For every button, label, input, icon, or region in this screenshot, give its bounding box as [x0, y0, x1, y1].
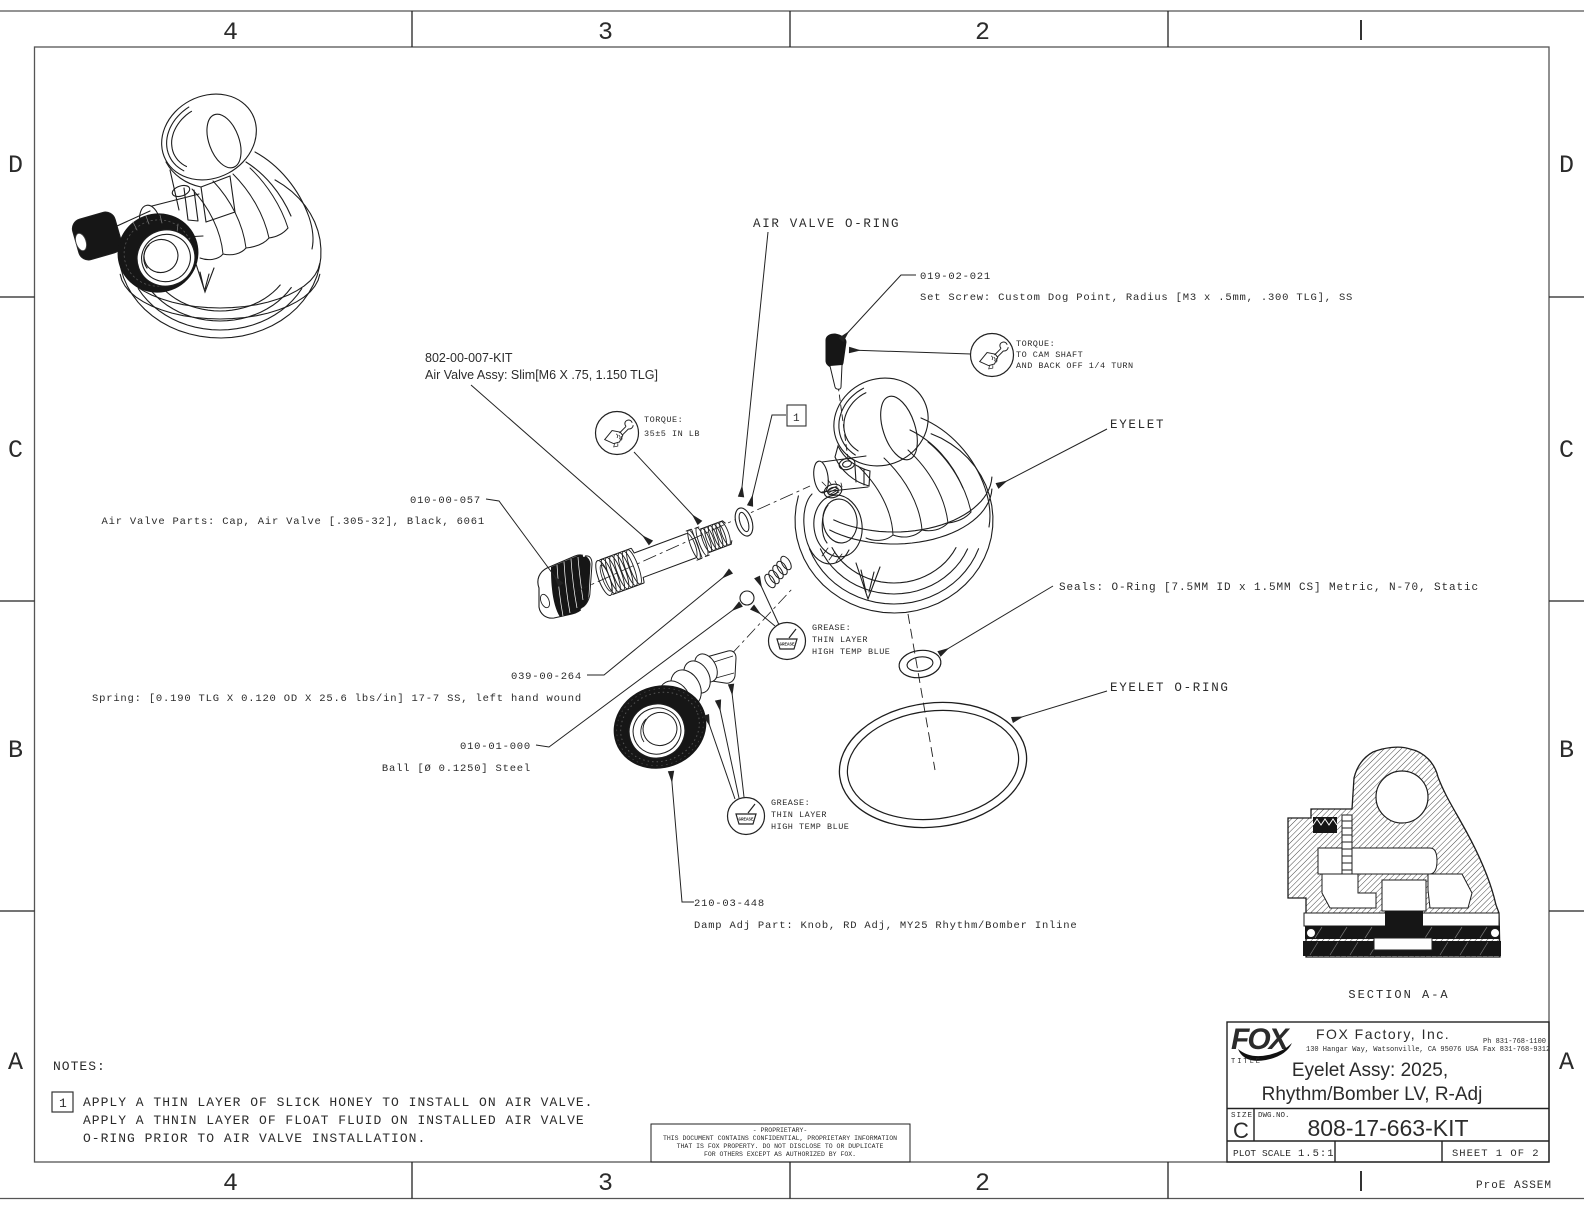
svg-text:1.5:1: 1.5:1: [1298, 1148, 1335, 1160]
svg-text:D: D: [1559, 151, 1574, 180]
svg-text:AND BACK OFF 1/4 TURN: AND BACK OFF 1/4 TURN: [1016, 361, 1134, 371]
svg-text:EYELET O-RING: EYELET O-RING: [1110, 681, 1230, 695]
svg-text:HIGH TEMP BLUE: HIGH TEMP BLUE: [812, 647, 890, 657]
svg-text:GREASE: GREASE: [779, 644, 795, 648]
svg-text:ProE ASSEM: ProE ASSEM: [1476, 1180, 1552, 1192]
svg-text:FOR OTHERS EXCEPT AS AUTHORIZE: FOR OTHERS EXCEPT AS AUTHORIZED BY FOX.: [704, 1151, 856, 1158]
svg-text:4: 4: [223, 18, 238, 47]
svg-text:Damp Adj Part: Knob, RD Adj, M: Damp Adj Part: Knob, RD Adj, MY25 Rhythm…: [694, 920, 1077, 932]
svg-text:GREASE:: GREASE:: [771, 798, 810, 808]
svg-text:Air Valve Parts: Cap, Air Valv: Air Valve Parts: Cap, Air Valve [.305-32…: [102, 516, 485, 528]
svg-text:- PROPRIETARY-: - PROPRIETARY-: [753, 1127, 808, 1134]
svg-text:GREASE:: GREASE:: [812, 623, 851, 633]
svg-text:TITLE: TITLE: [1231, 1058, 1262, 1066]
svg-text:Rhythm/Bomber LV, R-Adj: Rhythm/Bomber LV, R-Adj: [1262, 1084, 1483, 1105]
svg-text:GREASE: GREASE: [738, 819, 754, 823]
svg-text:Air Valve Assy: Slim[M6 X .75,: Air Valve Assy: Slim[M6 X .75, 1.150 TLG…: [425, 368, 658, 382]
svg-text:210-03-448: 210-03-448: [694, 898, 765, 910]
svg-text:PLOT SCALE: PLOT SCALE: [1233, 1148, 1291, 1159]
svg-text:1: 1: [793, 413, 800, 425]
svg-text:Spring: [0.190 TLG X 0.120 OD: Spring: [0.190 TLG X 0.120 OD X 25.6 lbs…: [92, 693, 582, 705]
svg-text:NOTES:: NOTES:: [53, 1059, 106, 1074]
svg-text:APPLY A THNIN LAYER OF FLOAT F: APPLY A THNIN LAYER OF FLOAT FLUID ON IN…: [83, 1113, 585, 1128]
svg-text:2: 2: [975, 1169, 990, 1198]
svg-text:35±5 IN LB: 35±5 IN LB: [644, 429, 700, 439]
svg-text:Seals: O-Ring [7.5MM ID x 1.5M: Seals: O-Ring [7.5MM ID x 1.5MM CS] Metr…: [1059, 582, 1479, 594]
svg-text:Set Screw: Custom Dog Point, R: Set Screw: Custom Dog Point, Radius [M3 …: [920, 292, 1353, 304]
svg-text:3: 3: [598, 18, 613, 47]
svg-text:130 Hangar Way, Watsonville, C: 130 Hangar Way, Watsonville, CA 95076 US…: [1306, 1046, 1479, 1054]
svg-text:DWG.NO.: DWG.NO.: [1258, 1112, 1290, 1120]
svg-text:HIGH TEMP BLUE: HIGH TEMP BLUE: [771, 822, 849, 832]
svg-text:EYELET: EYELET: [1110, 418, 1165, 432]
svg-text:3: 3: [598, 1169, 613, 1198]
svg-text:AIR VALVE O-RING: AIR VALVE O-RING: [753, 217, 900, 231]
svg-text:O-RING PRIOR TO AIR VALVE INST: O-RING PRIOR TO AIR VALVE INSTALLATION.: [83, 1131, 426, 1146]
svg-text:TORQUE:: TORQUE:: [644, 415, 683, 425]
svg-text:808-17-663-KIT: 808-17-663-KIT: [1307, 1115, 1468, 1141]
svg-text:010-01-000: 010-01-000: [460, 741, 531, 753]
svg-text:SHEET 1 OF 2: SHEET 1 OF 2: [1452, 1148, 1540, 1160]
svg-text:C: C: [1233, 1118, 1249, 1143]
svg-text:A: A: [1559, 1048, 1574, 1077]
svg-text:SECTION A-A: SECTION A-A: [1348, 988, 1449, 1002]
svg-text:Ph 831-768-1100: Ph 831-768-1100: [1483, 1038, 1546, 1046]
svg-text:THIN LAYER: THIN LAYER: [771, 810, 827, 820]
svg-text:039-00-264: 039-00-264: [511, 671, 582, 683]
svg-text:THAT IS FOX PROPERTY. DO NOT: THAT IS FOX PROPERTY. DO NOT DISCLOSE TO…: [677, 1143, 884, 1150]
svg-text:TO CAM SHAFT: TO CAM SHAFT: [1016, 350, 1083, 360]
svg-text:Ball [Ø 0.1250] Steel: Ball [Ø 0.1250] Steel: [382, 763, 531, 775]
svg-text:010-00-057: 010-00-057: [410, 495, 481, 507]
svg-text:Eyelet Assy: 2025,: Eyelet Assy: 2025,: [1292, 1060, 1448, 1081]
svg-text:C: C: [8, 436, 23, 465]
svg-text:THIN LAYER: THIN LAYER: [812, 635, 868, 645]
svg-text:TORQUE:: TORQUE:: [1016, 339, 1055, 349]
svg-text:C: C: [1559, 436, 1574, 465]
svg-text:D: D: [8, 151, 23, 180]
svg-text:019-02-021: 019-02-021: [920, 271, 991, 283]
svg-text:4: 4: [223, 1169, 238, 1198]
svg-text:802-00-007-KIT: 802-00-007-KIT: [425, 351, 513, 365]
svg-text:B: B: [1559, 736, 1574, 765]
svg-text:THIS DOCUMENT CONTAINS CONFIDE: THIS DOCUMENT CONTAINS CONFIDENTIAL, PRO…: [663, 1135, 897, 1142]
svg-text:A: A: [8, 1048, 23, 1077]
svg-text:1: 1: [59, 1096, 68, 1111]
svg-text:2: 2: [975, 18, 990, 47]
svg-text:Fax 831-768-9312: Fax 831-768-9312: [1483, 1046, 1550, 1054]
svg-text:APPLY A THIN LAYER OF SLICK HO: APPLY A THIN LAYER OF SLICK HONEY TO INS…: [83, 1095, 593, 1110]
svg-text:FOX Factory, Inc.: FOX Factory, Inc.: [1316, 1026, 1450, 1042]
svg-text:B: B: [8, 736, 23, 765]
